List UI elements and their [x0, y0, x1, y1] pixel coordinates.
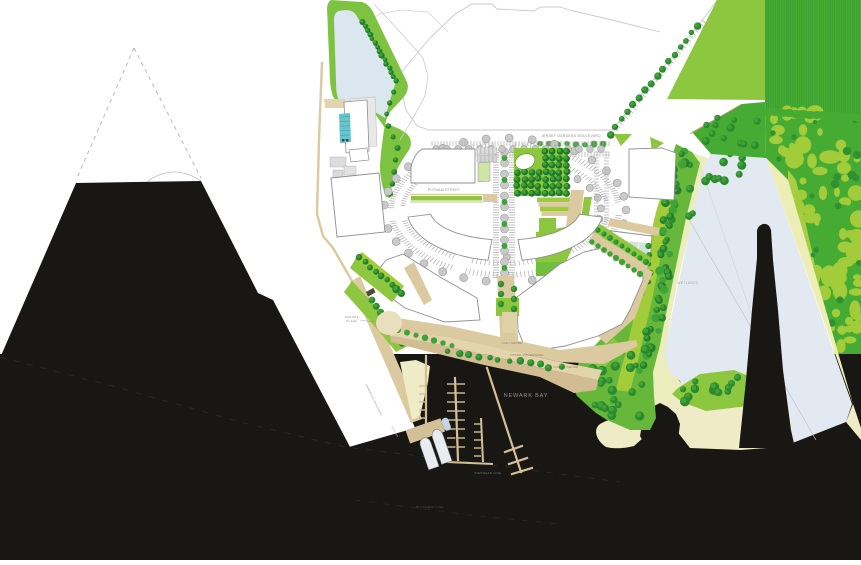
svg-text:JERSEY GARDENS BOULEVARD: JERSEY GARDENS BOULEVARD [541, 134, 601, 138]
svg-text:HIGH SHORE: HIGH SHORE [501, 341, 522, 345]
svg-text:PUTNAM STREET: PUTNAM STREET [428, 188, 461, 192]
svg-text:UPPER PROMENADE: UPPER PROMENADE [510, 353, 544, 357]
svg-text:LOWER SHORE: LOWER SHORE [554, 365, 579, 369]
svg-text:PLAZA: PLAZA [346, 319, 357, 323]
svg-text:WETLANDS: WETLANDS [678, 281, 699, 285]
svg-text:NEWARK BAY: NEWARK BAY [504, 393, 549, 399]
svg-text:BULKHEAD LINE: BULKHEAD LINE [416, 505, 444, 509]
svg-text:PIERHEAD LINE: PIERHEAD LINE [475, 471, 502, 475]
